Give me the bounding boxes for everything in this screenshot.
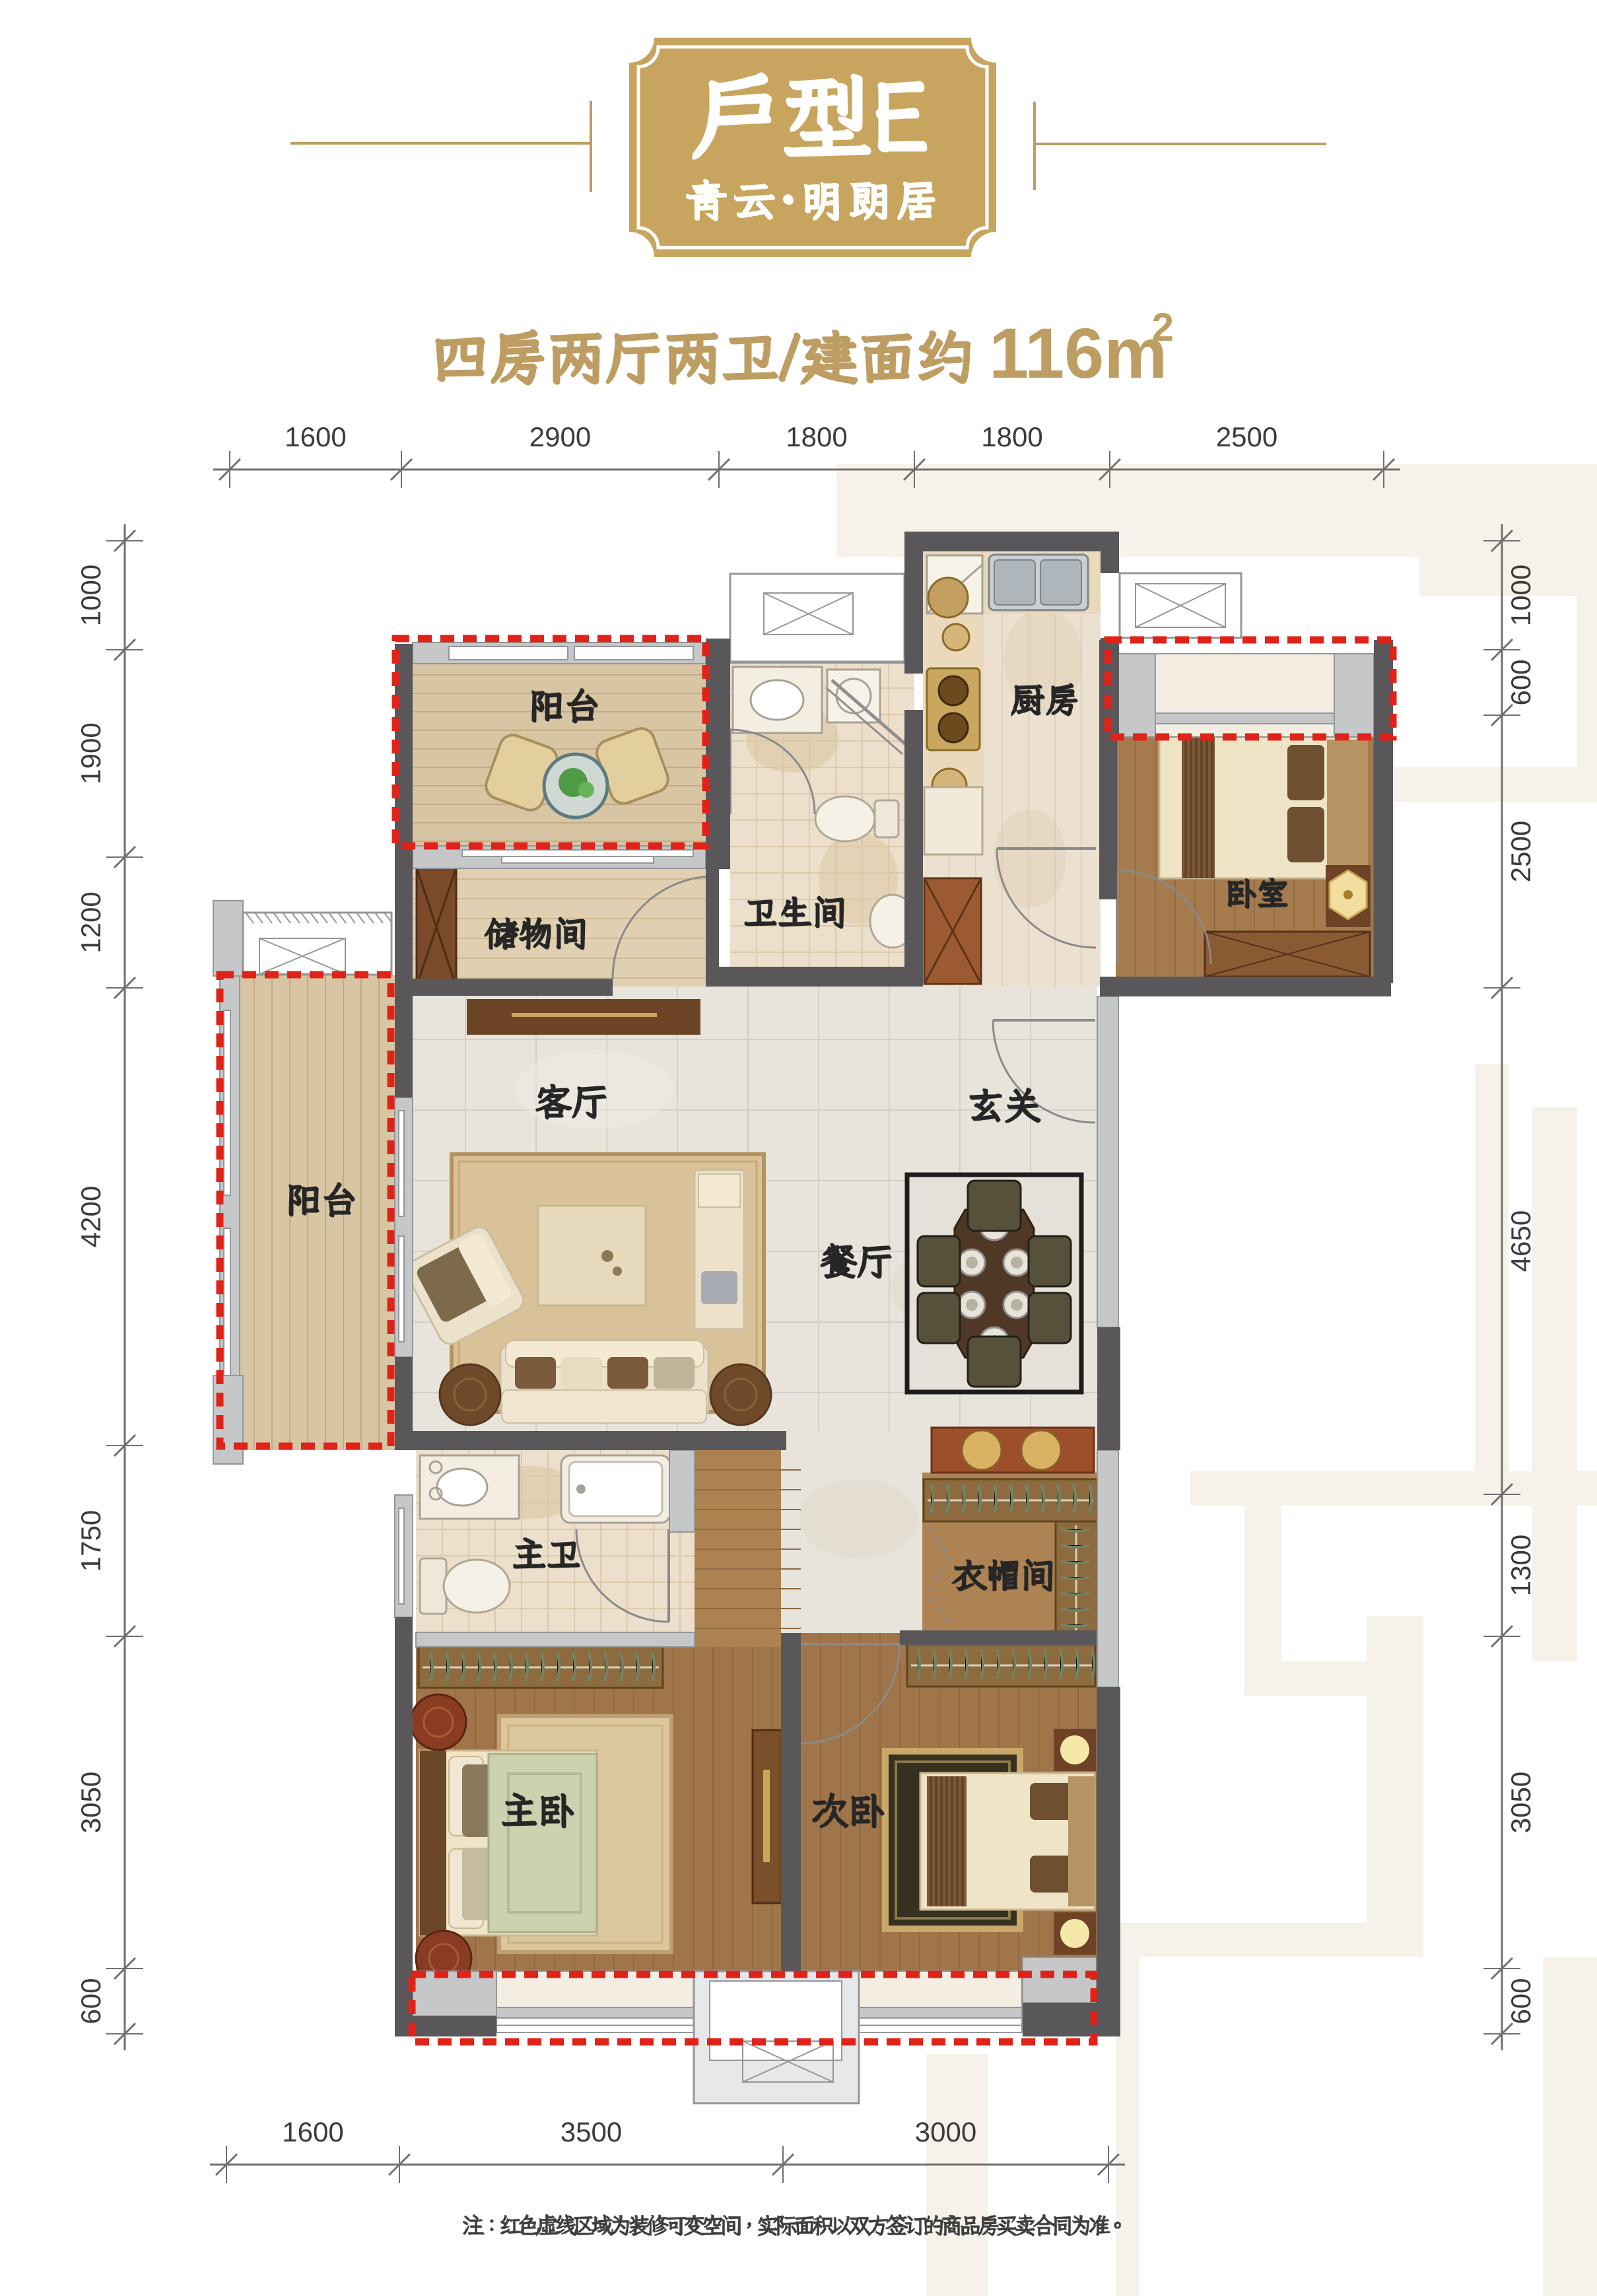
svg-text:1000: 1000 <box>1505 565 1536 626</box>
svg-text:3050: 3050 <box>1505 1772 1536 1833</box>
svg-text:116m: 116m <box>989 313 1167 393</box>
svg-text:2500: 2500 <box>1505 821 1536 882</box>
svg-text:600: 600 <box>1505 659 1536 705</box>
svg-text:1800: 1800 <box>981 421 1042 452</box>
svg-text:2: 2 <box>1152 305 1174 349</box>
svg-text:1900: 1900 <box>75 722 106 784</box>
svg-text:1300: 1300 <box>1505 1535 1536 1596</box>
svg-text:1600: 1600 <box>282 2116 343 2147</box>
svg-text:1000: 1000 <box>75 565 106 626</box>
svg-text:3050: 3050 <box>75 1772 106 1833</box>
svg-text:2500: 2500 <box>1216 421 1277 452</box>
svg-text:1800: 1800 <box>786 421 847 452</box>
svg-text:2900: 2900 <box>529 421 591 452</box>
svg-text:600: 600 <box>75 1978 106 2024</box>
svg-text:1200: 1200 <box>75 891 106 953</box>
svg-text:4650: 4650 <box>1505 1210 1536 1272</box>
svg-text:600: 600 <box>1505 1978 1536 2024</box>
svg-text:1750: 1750 <box>75 1510 106 1572</box>
svg-text:4200: 4200 <box>75 1186 106 1247</box>
svg-text:1600: 1600 <box>285 421 346 452</box>
svg-text:3000: 3000 <box>915 2116 976 2147</box>
svg-text:3500: 3500 <box>561 2116 622 2147</box>
